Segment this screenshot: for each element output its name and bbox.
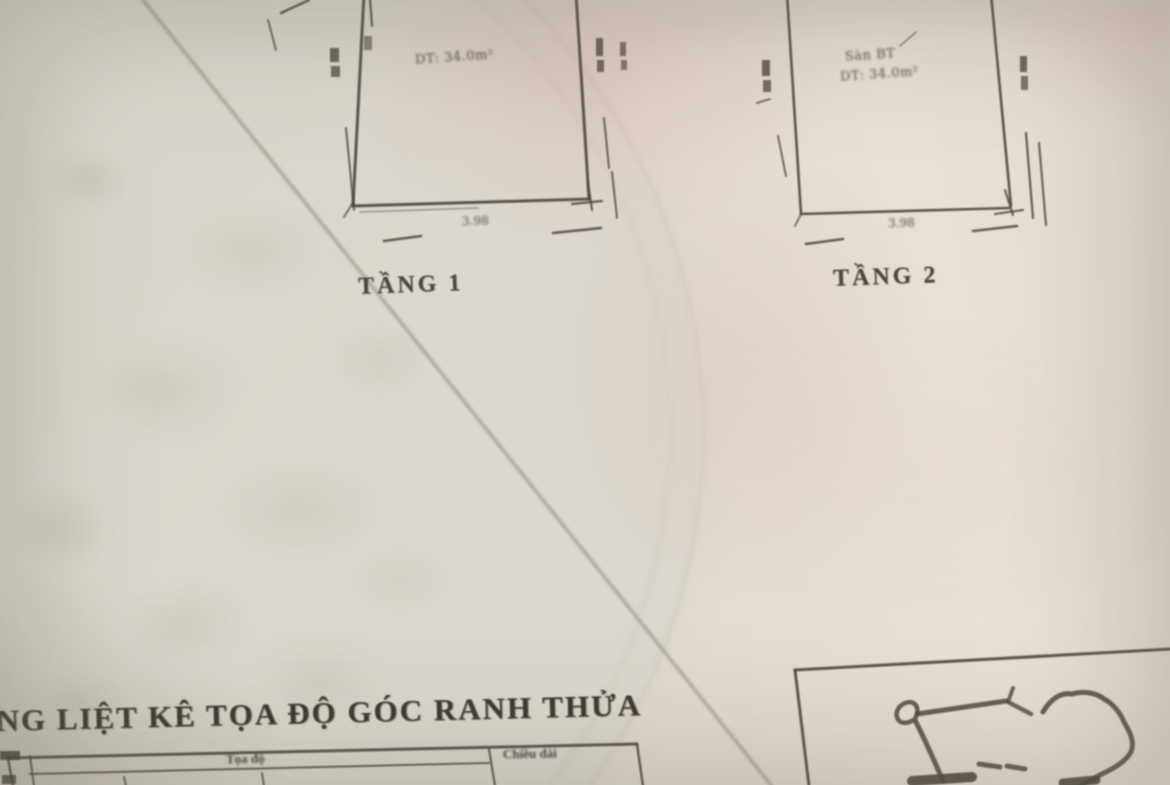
photo-vignette xyxy=(0,0,1170,785)
photographed-survey-document: DT: 34.0m² Sàn BT DT: 34.0m² 3.98 3.98 T… xyxy=(0,0,1170,785)
